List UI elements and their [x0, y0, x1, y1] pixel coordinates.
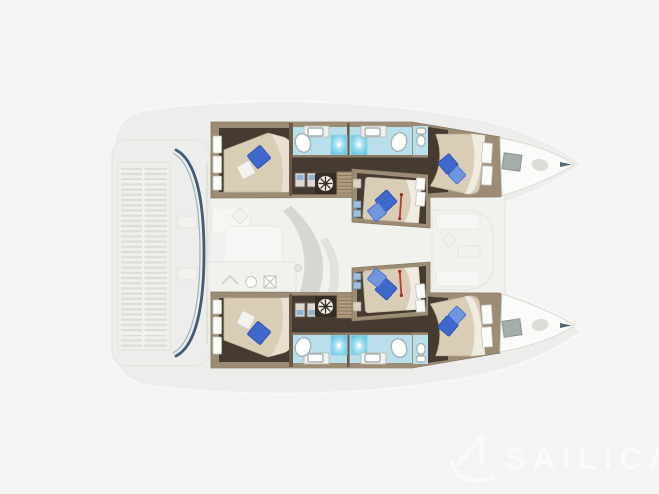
cockpit-locker	[177, 268, 197, 280]
foredeck-table	[458, 246, 480, 257]
foredeck-lounge-faded	[432, 210, 493, 290]
counter-sink-icon	[308, 128, 323, 136]
toilet-icon	[417, 128, 426, 147]
sailica-watermark: SAILICA	[452, 436, 659, 481]
sailboat-logo-icon	[452, 436, 493, 481]
bow-hatch-icon	[502, 153, 522, 171]
cabin-windows	[213, 136, 222, 190]
port-aft-cabin	[213, 128, 292, 192]
helm-wheel-icon	[315, 173, 336, 194]
mast-foot	[295, 265, 302, 272]
watermark-text: SAILICA	[505, 441, 659, 476]
aft-platform	[112, 140, 210, 366]
stove-icon	[264, 276, 276, 288]
counter-sink-icon	[365, 128, 380, 136]
cockpit-locker	[177, 216, 197, 228]
floorplan-svg: SAILICA	[0, 0, 659, 494]
cabin-windows	[416, 178, 426, 207]
galley-sink-icon	[246, 277, 257, 288]
port-forward-cabin	[428, 127, 493, 195]
port-mid-cabin	[352, 169, 430, 228]
catamaran-floorplan-image: SAILICA	[0, 0, 659, 494]
